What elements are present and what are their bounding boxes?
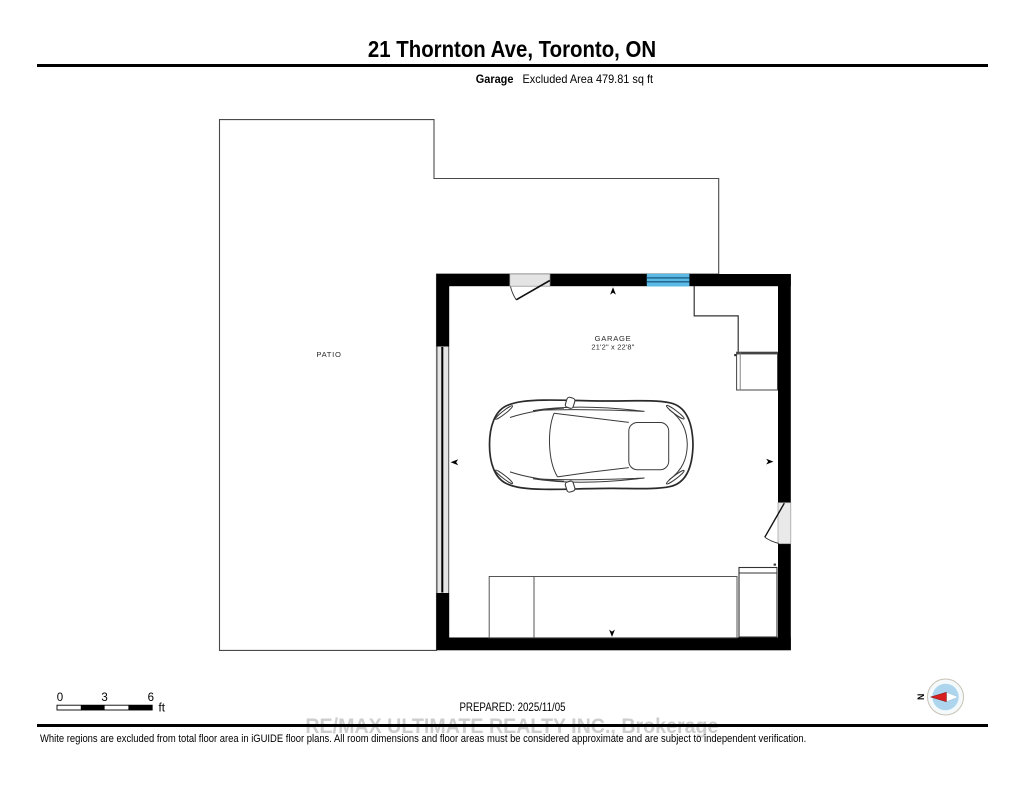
svg-text:PATIO: PATIO xyxy=(316,350,341,359)
svg-text:GARAGE: GARAGE xyxy=(595,334,632,343)
svg-text:21'2" x 22'8": 21'2" x 22'8" xyxy=(591,343,634,352)
